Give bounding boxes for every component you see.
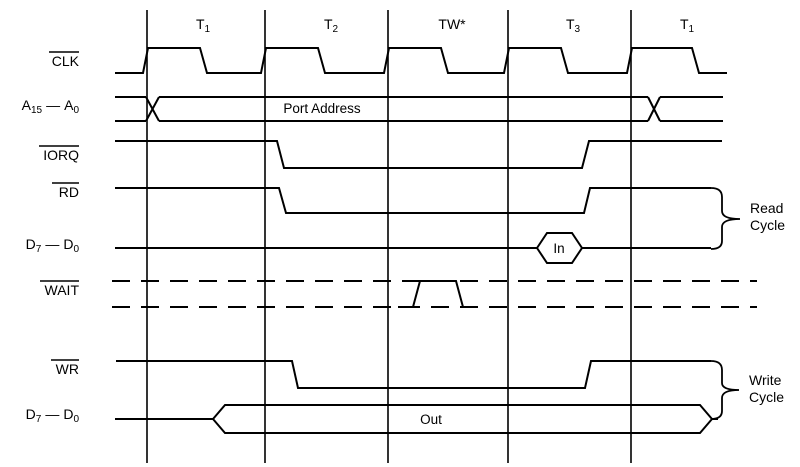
write-cycle-group: Write Cycle [711,361,784,419]
data-in-annotation: In [553,241,564,256]
read-cycle-label-line1: Read [750,200,783,216]
iorq-label: IORQ [43,147,79,163]
signal-row-rd: RD [52,183,711,213]
timing-diagram-canvas: T1 T2 TW* T3 T1 CLK A15—A0 Port Address … [0,0,800,467]
data-bus-read-waveform [115,233,711,263]
data-bus-write-waveform [115,405,718,433]
signal-row-iorq: IORQ [39,141,722,168]
wait-label: WAIT [45,282,80,298]
signal-row-address-bus: A15—A0 Port Address [22,97,723,121]
wait-pulse-waveform [398,281,477,307]
signal-row-wr: WR [51,360,711,388]
t-state-label-t1: T1 [196,16,211,35]
t-state-gridlines [147,10,631,463]
data-out-annotation: Out [420,412,442,427]
write-cycle-label-line1: Write [749,372,782,388]
rd-label: RD [59,184,79,200]
t-state-label-t3: T3 [566,16,581,35]
write-cycle-label-line2: Cycle [749,389,784,405]
timing-diagram: T1 T2 TW* T3 T1 CLK A15—A0 Port Address … [0,0,800,467]
read-cycle-label-line2: Cycle [750,217,785,233]
t-state-label-t1-next: T1 [680,16,695,35]
wr-label: WR [56,361,79,377]
port-address-annotation: Port Address [283,101,361,116]
rd-waveform [115,188,711,213]
t-state-labels: T1 T2 TW* T3 T1 [196,16,695,35]
t-state-label-t2: T2 [324,16,339,35]
address-bus-label: A15—A0 [22,97,80,116]
read-cycle-group: Read Cycle [711,188,785,249]
data-bus-read-label: D7—D0 [26,236,80,255]
read-cycle-brace [711,188,740,249]
clk-waveform [115,48,727,73]
write-cycle-brace [711,361,739,419]
wr-waveform [116,361,711,388]
signal-row-data-bus-write: D7—D0 Out [26,405,718,433]
clk-label: CLK [52,53,80,69]
t-state-label-tw: TW* [438,16,466,32]
data-bus-write-label: D7—D0 [26,406,80,425]
signal-row-data-bus-read: D7—D0 In [26,233,711,263]
